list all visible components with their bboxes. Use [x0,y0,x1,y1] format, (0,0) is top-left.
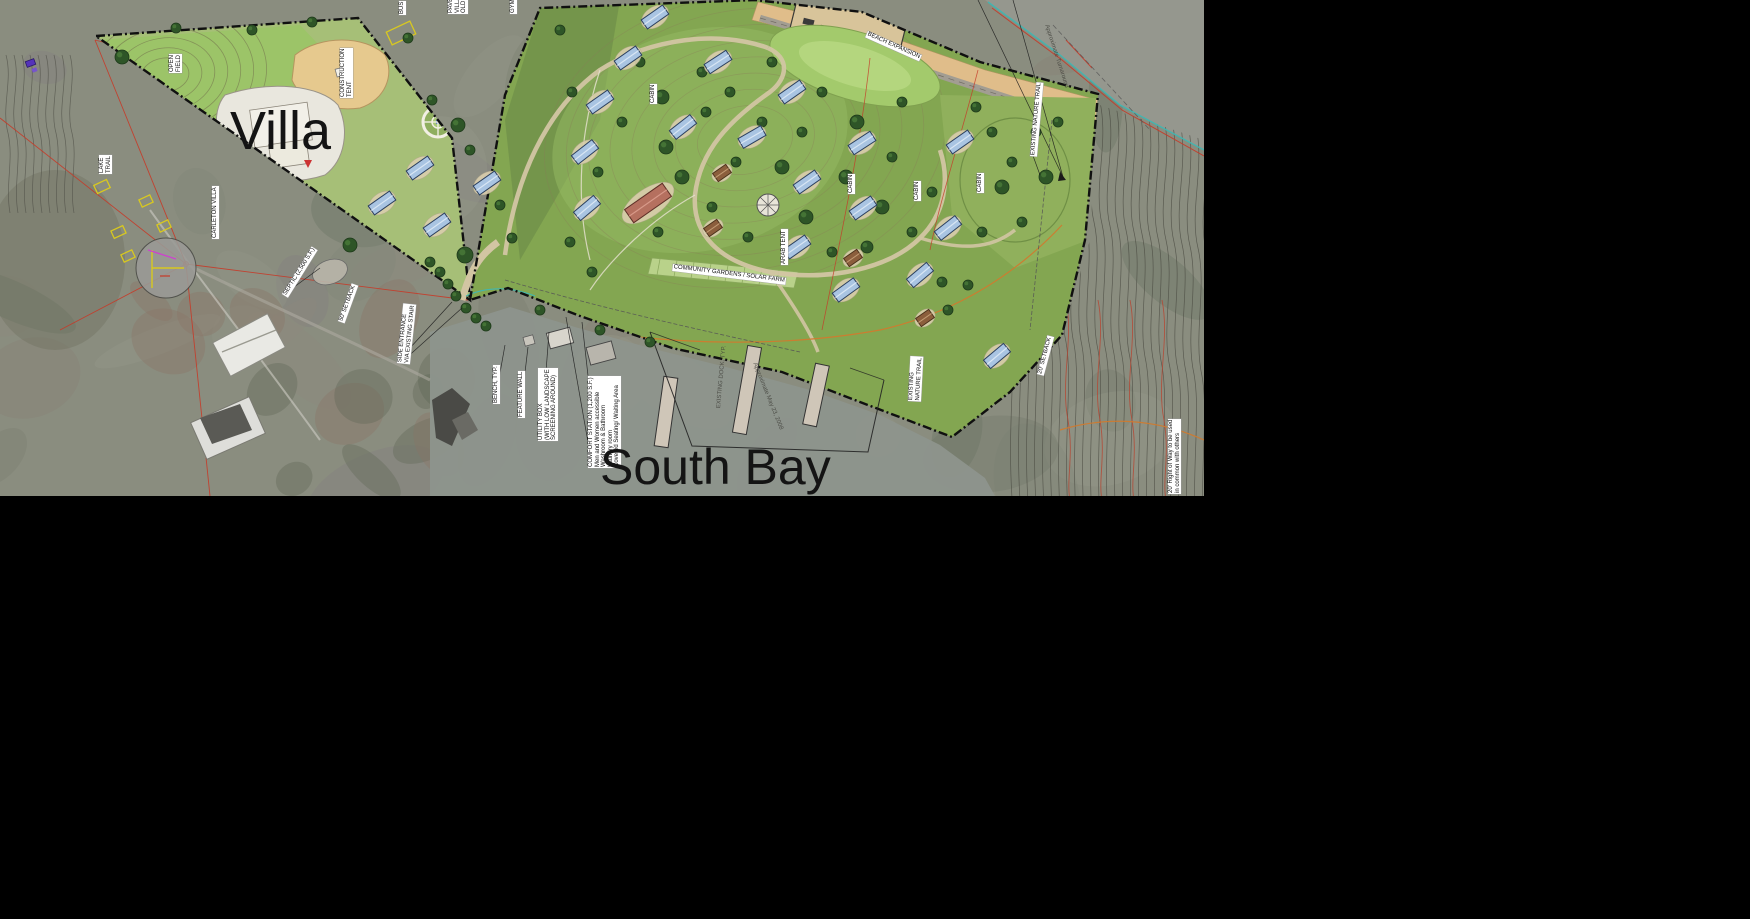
map-annotation-label: UTILITY BOX(WITH LOW LANDSCAPESCREENING … [538,368,558,441]
map-annotation-label: BUS [399,1,406,15]
map-annotation-label: LAKETRAIL [99,155,112,174]
south-bay-water-label: South Bay [600,438,831,496]
map-annotation-label: CABIN [914,181,921,201]
site-plan-map: Villa South Bay OPENFIELDCONSTRUCTIONTEN… [0,0,1204,496]
map-annotation-label: PAVEDVILLAOLD TO [448,0,468,14]
map-annotation-label: ARAB TENT [781,229,788,265]
map-annotation-label: FEATURE WALL [518,371,525,418]
map-annotation-label: GYM [510,0,517,14]
map-annotation-label: CABIN [977,173,984,193]
map-annotation-label: CONSTRUCTIONTENT [340,48,353,98]
map-annotation-label: EXISTINGNATURE TRAIL [908,356,923,401]
map-annotation-label: CABIN [650,84,657,104]
map-annotation-label: BENCH, TYP. [493,365,500,404]
map-annotation-label: 20' Right of Way to be usedin common wit… [1168,419,1181,494]
map-annotation-label: CARLETON VILLA [212,186,219,239]
villa-area-label: Villa [230,100,331,162]
map-annotation-label: OPENFIELD [169,54,182,73]
screenshot-canvas: Villa South Bay OPENFIELDCONSTRUCTIONTEN… [0,0,1750,919]
map-annotation-label: CABIN [848,174,855,194]
